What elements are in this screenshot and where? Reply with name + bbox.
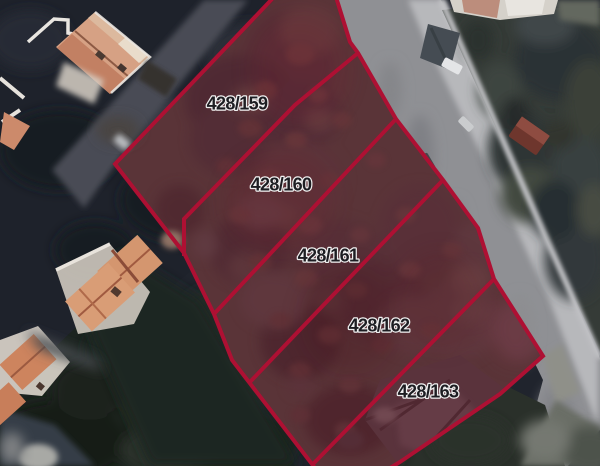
- svg-text:428/161: 428/161: [298, 246, 359, 266]
- svg-text:428/159: 428/159: [207, 94, 268, 114]
- svg-text:428/163: 428/163: [398, 382, 459, 402]
- svg-text:428/160: 428/160: [251, 175, 312, 195]
- svg-text:428/162: 428/162: [349, 316, 410, 336]
